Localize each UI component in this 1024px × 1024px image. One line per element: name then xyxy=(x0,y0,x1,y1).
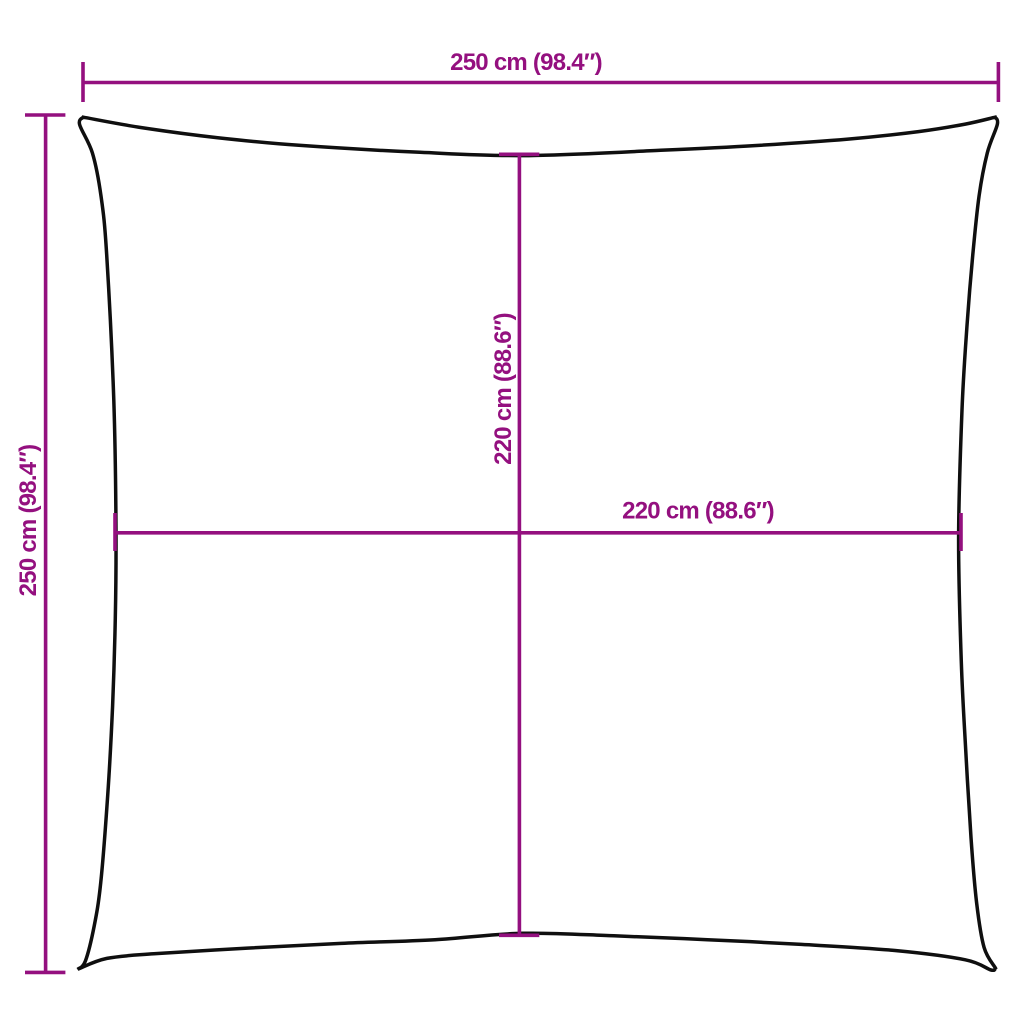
svg-text:250 cm (98.4″): 250 cm (98.4″) xyxy=(450,49,602,76)
svg-text:220 cm (88.6″): 220 cm (88.6″) xyxy=(490,313,517,465)
svg-text:220 cm (88.6″): 220 cm (88.6″) xyxy=(622,497,774,524)
svg-text:250 cm (98.4″): 250 cm (98.4″) xyxy=(15,445,42,597)
